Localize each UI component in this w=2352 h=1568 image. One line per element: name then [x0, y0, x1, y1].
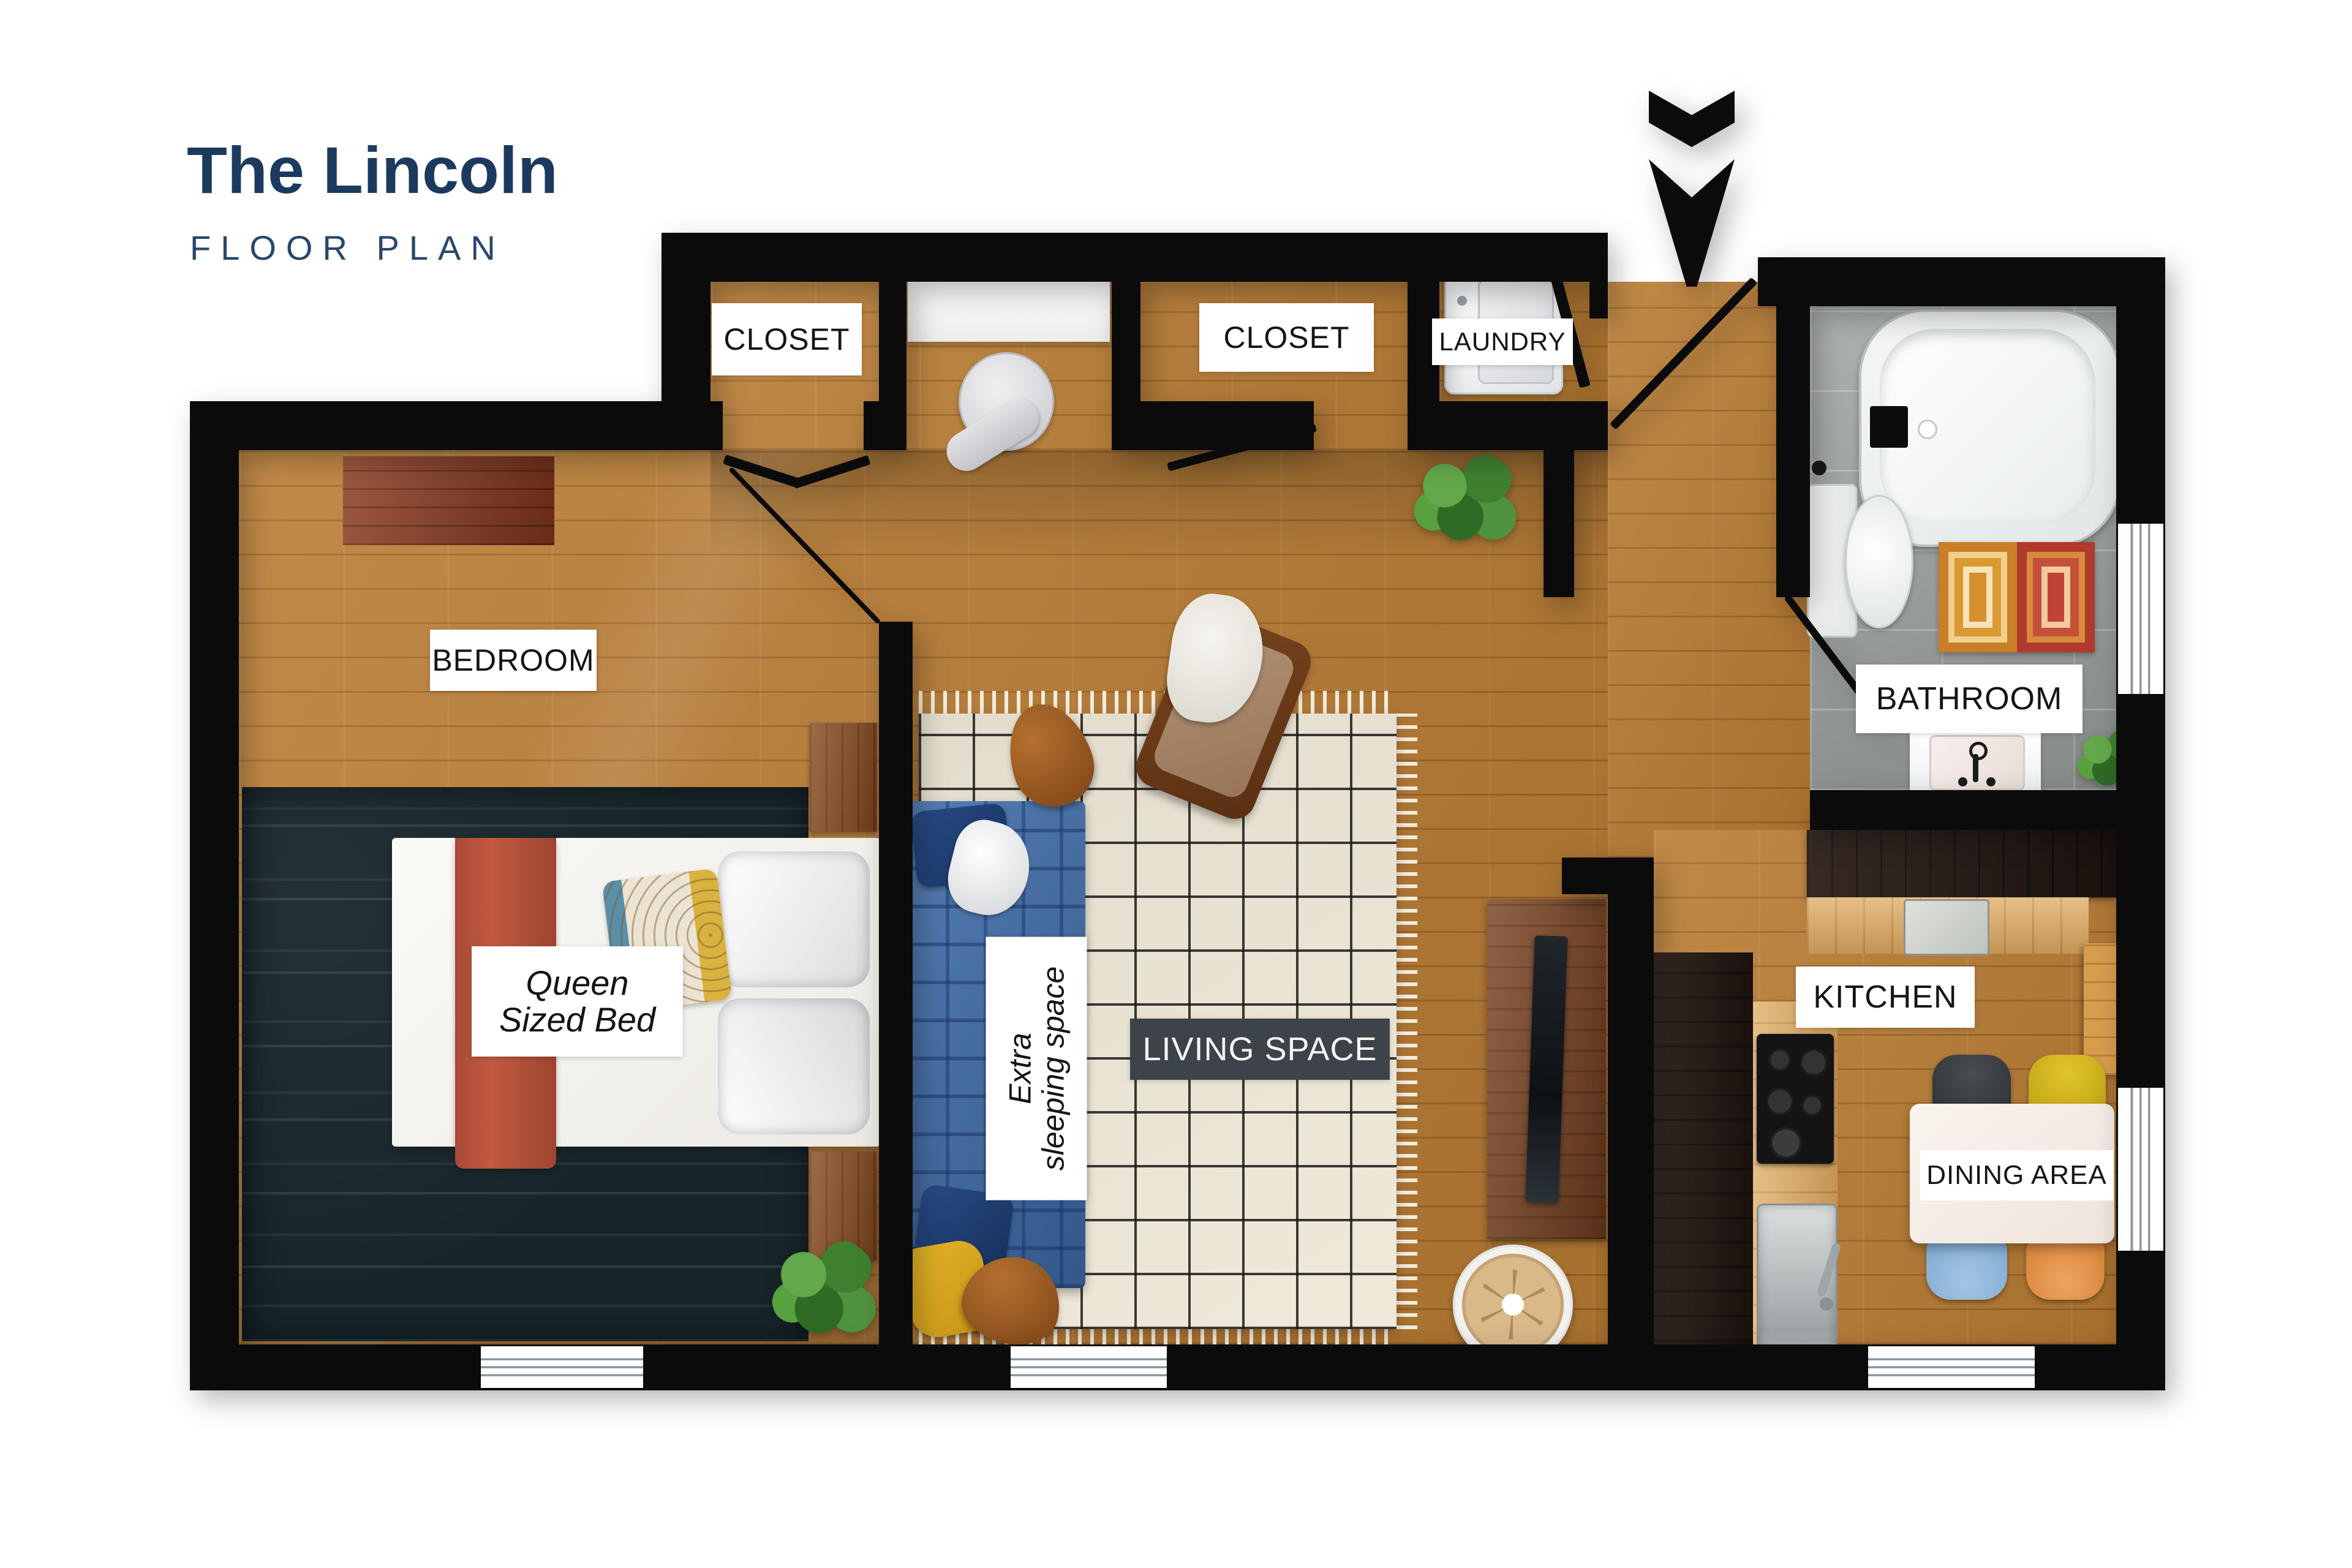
wall-living-kitchen-stub	[1562, 858, 1654, 894]
living-space-label: LIVING SPACE	[1130, 1019, 1390, 1080]
extra-sleeping-annotation: Extra sleeping space	[986, 937, 1087, 1200]
laundry-label: LAUNDRY	[1432, 318, 1573, 365]
wall-left	[190, 401, 239, 1390]
wall-laundry-stub	[1543, 450, 1574, 597]
entry-arrow-chevron	[1649, 91, 1735, 149]
closet-right-label: CLOSET	[1199, 303, 1374, 372]
wall-bathroom-left	[1776, 282, 1810, 597]
bedroom-label: BEDROOM	[430, 630, 597, 691]
bathroom-label: BATHROOM	[1856, 665, 2082, 733]
wall-closet2-bottom	[1112, 401, 1314, 450]
window-living	[1011, 1346, 1167, 1388]
window-dining-right	[2118, 1088, 2163, 1251]
wall-laundry-right	[1589, 233, 1608, 318]
wall-bathroom-bottom	[1810, 790, 2165, 830]
wall-bedroom-right	[879, 622, 913, 1344]
door-bedroom-leaf	[728, 467, 881, 624]
window-bathroom-right	[2118, 524, 2163, 694]
queen-bed-annotation: Queen Sized Bed	[472, 946, 683, 1057]
wall-closet-row-top	[661, 233, 1599, 282]
wall-closet-row-left	[661, 233, 710, 450]
window-bedroom	[481, 1346, 643, 1388]
wall-bathroom-top	[1758, 257, 2165, 306]
entry-arrow-head	[1649, 159, 1735, 287]
wall-bedroom-top	[190, 401, 723, 450]
closet-left-label: CLOSET	[712, 303, 862, 375]
kitchen-label: KITCHEN	[1796, 967, 1975, 1028]
extra-sleeping-line2: sleeping space	[1036, 967, 1069, 1171]
queen-bed-line1: Queen	[526, 965, 628, 1001]
dining-area-label: DINING AREA	[1920, 1150, 2113, 1200]
door-closet1-bifold-right	[792, 455, 871, 489]
window-dining-bottom	[1868, 1346, 2035, 1388]
extra-sleeping-line1: Extra	[1003, 1033, 1036, 1104]
wall-closet1-right	[879, 282, 907, 450]
floor-plan-page: The Lincoln FLOOR PLAN	[0, 0, 2352, 1568]
door-entry-leaf	[1610, 277, 1757, 429]
entry-arrow-down-icon	[1649, 91, 1735, 287]
walls-layer	[0, 0, 2352, 1568]
queen-bed-line2: Sized Bed	[499, 1001, 655, 1038]
wall-living-kitchen	[1608, 858, 1654, 1390]
wall-laundry-bottom	[1409, 401, 1608, 450]
